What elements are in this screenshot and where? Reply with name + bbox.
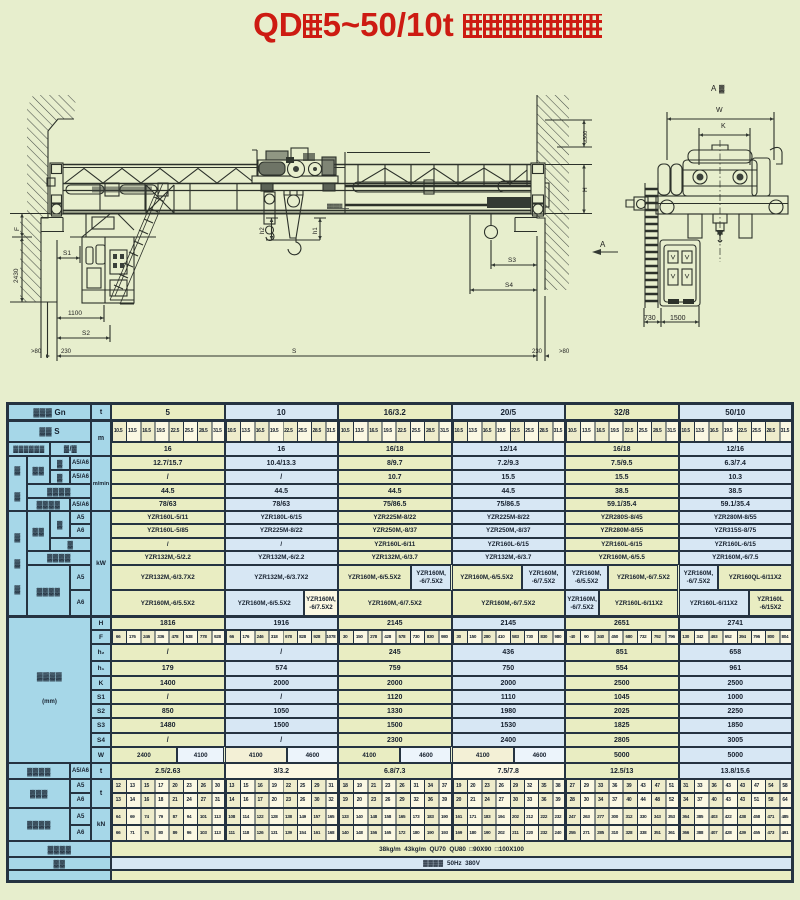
- svg-text:1500: 1500: [670, 315, 686, 322]
- svg-text:▓: ▓: [719, 84, 725, 94]
- svg-text:H: H: [582, 187, 589, 192]
- svg-text:S2: S2: [82, 330, 90, 337]
- svg-text:A: A: [711, 84, 717, 93]
- svg-text:230: 230: [532, 349, 543, 355]
- svg-text:≥300: ≥300: [583, 131, 589, 143]
- svg-text:1100: 1100: [68, 310, 82, 317]
- svg-text:F: F: [14, 227, 21, 231]
- svg-text:2430: 2430: [13, 268, 20, 283]
- svg-text:230: 230: [61, 349, 72, 355]
- svg-text:A: A: [600, 240, 606, 249]
- svg-text:>80: >80: [559, 349, 570, 355]
- svg-text:K: K: [721, 123, 726, 130]
- svg-text:>80: >80: [31, 349, 42, 355]
- svg-text:h1: h1: [313, 227, 319, 234]
- svg-text:S4: S4: [505, 282, 513, 289]
- svg-text:S3: S3: [508, 257, 516, 264]
- svg-text:S1: S1: [63, 250, 71, 257]
- svg-text:730: 730: [644, 315, 656, 322]
- svg-text:W: W: [716, 107, 723, 114]
- svg-text:h2: h2: [260, 227, 266, 234]
- svg-text:S: S: [292, 348, 297, 355]
